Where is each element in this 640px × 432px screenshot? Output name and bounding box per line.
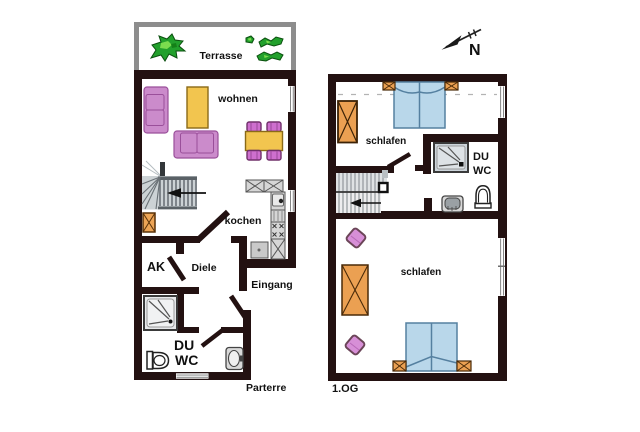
- svg-text:DU: DU: [473, 151, 489, 163]
- svg-text:wohnen: wohnen: [217, 93, 258, 105]
- svg-text:kochen: kochen: [225, 215, 262, 227]
- svg-text:Eingang: Eingang: [251, 279, 292, 291]
- svg-text:Terrasse: Terrasse: [199, 50, 242, 62]
- svg-text:schlafen: schlafen: [401, 267, 442, 278]
- svg-text:Diele: Diele: [191, 262, 216, 274]
- svg-text:AK: AK: [147, 260, 165, 274]
- svg-text:N: N: [469, 42, 481, 59]
- svg-text:WC: WC: [175, 352, 198, 368]
- svg-text:Parterre: Parterre: [246, 382, 286, 394]
- svg-text:DU: DU: [174, 337, 194, 353]
- svg-text:WC: WC: [473, 165, 491, 177]
- svg-text:1.OG: 1.OG: [332, 383, 358, 395]
- svg-text:schlafen: schlafen: [366, 136, 407, 147]
